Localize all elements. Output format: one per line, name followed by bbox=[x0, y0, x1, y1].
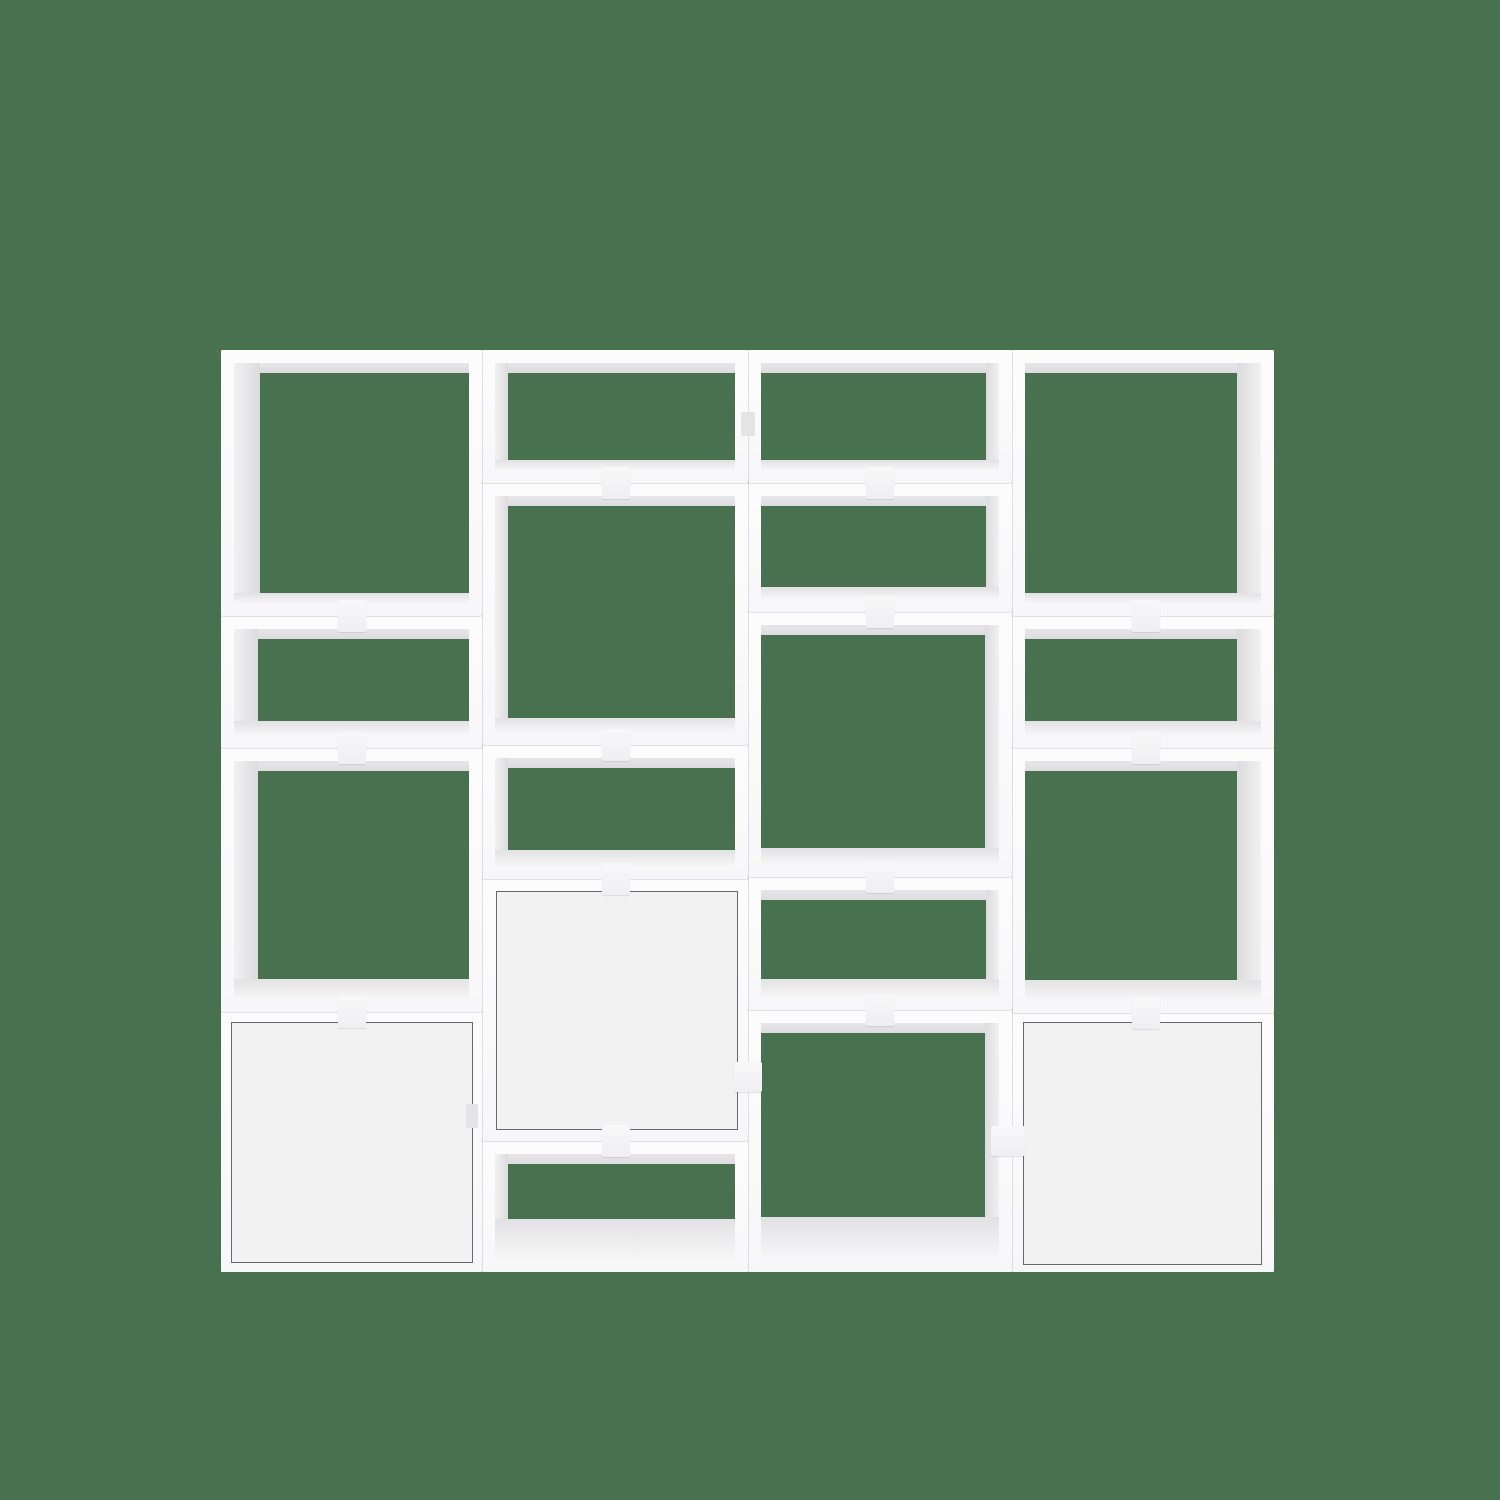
module-cavity bbox=[1025, 629, 1261, 735]
connector-clip bbox=[602, 1125, 630, 1157]
cavity-sidewall-shade bbox=[1237, 761, 1261, 980]
shelf-module-open bbox=[221, 350, 482, 616]
cavity-sidewall-shade bbox=[986, 890, 999, 979]
cavity-sidewall-shade bbox=[234, 761, 258, 979]
module-cavity bbox=[495, 1154, 735, 1259]
connector-slot bbox=[741, 412, 755, 436]
connector-clip bbox=[866, 596, 894, 628]
shelf-module-cabinet bbox=[482, 879, 748, 1141]
cavity-sidewall-shade bbox=[234, 629, 258, 721]
connector-clip bbox=[866, 994, 894, 1026]
connector-clip bbox=[1132, 997, 1160, 1029]
shelf-module-open bbox=[482, 483, 748, 745]
cavity-sidewall-shade bbox=[495, 1154, 508, 1219]
module-cavity bbox=[495, 496, 735, 732]
module-cavity bbox=[495, 363, 735, 470]
module-cavity bbox=[761, 496, 999, 599]
cabinet-door bbox=[231, 1022, 473, 1263]
cavity-ceiling-shade bbox=[234, 363, 469, 373]
shelf-module-open bbox=[221, 748, 482, 1012]
module-cavity bbox=[1025, 363, 1261, 603]
connector-clip bbox=[338, 600, 366, 632]
cabinet-door bbox=[496, 891, 738, 1130]
shelf-module-cabinet bbox=[1012, 1013, 1274, 1272]
cavity-sidewall-shade bbox=[986, 363, 999, 460]
connector-clip-side bbox=[734, 1062, 762, 1092]
connector-clip bbox=[602, 729, 630, 761]
panel-seam-vertical bbox=[748, 352, 749, 1270]
cavity-ceiling-shade bbox=[1025, 363, 1261, 373]
connector-clip bbox=[338, 996, 366, 1028]
cavity-ceiling-shade bbox=[761, 363, 999, 373]
shelf-module-open bbox=[221, 616, 482, 748]
connector-clip bbox=[338, 732, 366, 764]
shelf-module-open bbox=[748, 612, 1012, 877]
cavity-floor-shade bbox=[761, 1217, 999, 1259]
shelf-module-open bbox=[1012, 748, 1274, 1013]
connector-clip-side bbox=[991, 1126, 1025, 1156]
connector-slot bbox=[466, 1104, 478, 1128]
shelf-module-open bbox=[482, 745, 748, 879]
connector-clip bbox=[602, 863, 630, 895]
cavity-sidewall-shade bbox=[986, 496, 999, 587]
panel-seam-vertical bbox=[482, 352, 483, 1270]
shelf-module-open bbox=[748, 483, 1012, 612]
shelf-module-cabinet bbox=[221, 1012, 482, 1272]
shelf-module-open bbox=[1012, 350, 1274, 616]
cavity-sidewall-shade bbox=[495, 496, 508, 718]
module-cavity bbox=[761, 1023, 999, 1259]
module-cavity bbox=[1025, 761, 1261, 1000]
cavity-sidewall-shade bbox=[985, 625, 999, 848]
connector-clip bbox=[866, 467, 894, 499]
cavity-sidewall-shade bbox=[985, 1023, 999, 1217]
module-cavity bbox=[234, 363, 469, 603]
module-cavity bbox=[761, 363, 999, 470]
shelf-module-open bbox=[482, 350, 748, 483]
cavity-ceiling-shade bbox=[495, 363, 735, 373]
shelf-module-open bbox=[748, 877, 1012, 1010]
module-cavity bbox=[234, 761, 469, 999]
shelf-module-open bbox=[748, 1010, 1012, 1272]
cavity-sidewall-shade bbox=[1237, 629, 1261, 721]
cavity-floor-shade bbox=[495, 1219, 735, 1259]
connector-clip bbox=[1132, 732, 1160, 764]
module-cavity bbox=[761, 625, 999, 864]
connector-clip bbox=[602, 467, 630, 499]
cavity-sidewall-shade bbox=[495, 363, 508, 460]
cavity-sidewall-shade bbox=[495, 758, 508, 850]
cavity-sidewall-shade bbox=[234, 363, 260, 593]
cavity-sidewall-shade bbox=[1237, 363, 1261, 593]
module-cavity bbox=[234, 629, 469, 735]
shelf-module-open bbox=[482, 1141, 748, 1272]
module-cavity bbox=[495, 758, 735, 866]
connector-clip bbox=[866, 861, 894, 893]
module-cavity bbox=[761, 890, 999, 997]
connector-clip bbox=[1132, 600, 1160, 632]
product-image bbox=[0, 0, 1500, 1500]
cabinet-door bbox=[1023, 1022, 1262, 1265]
shelf-module-open bbox=[748, 350, 1012, 483]
shelf-module-open bbox=[1012, 616, 1274, 748]
